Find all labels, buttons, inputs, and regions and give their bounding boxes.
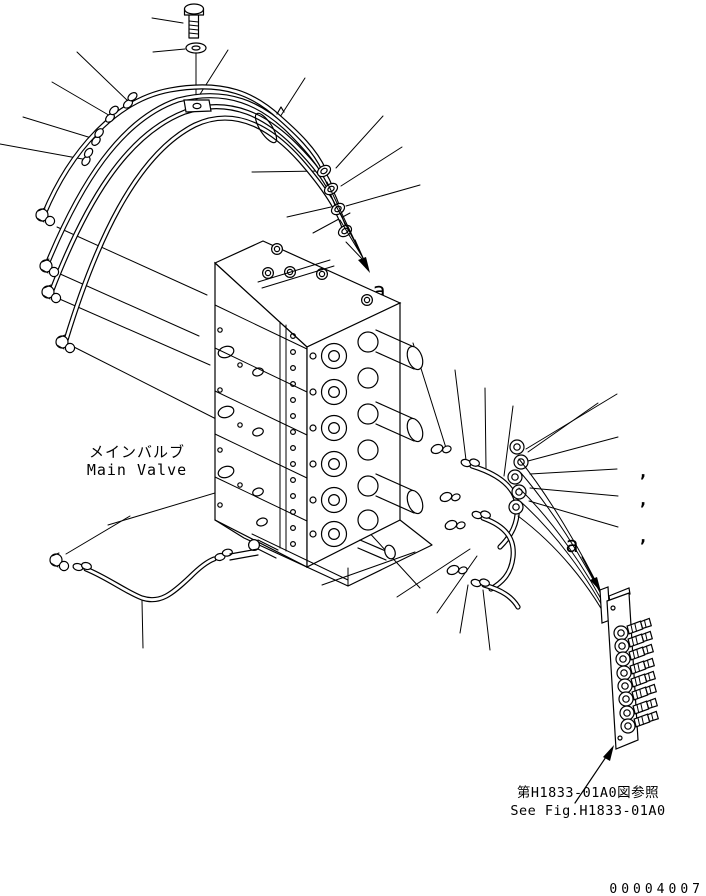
main-valve-label: メインバルブ Main Valve xyxy=(87,443,187,479)
reference-note-en: See Fig.H1833-01A0 xyxy=(510,803,665,819)
callout-comma-1: , xyxy=(638,462,648,482)
parts-diagram-canvas: a xyxy=(0,0,706,896)
lower-pilot-hose xyxy=(50,548,258,599)
callout-commas: , , , xyxy=(638,462,648,547)
main-valve-label-en: Main Valve xyxy=(87,461,187,479)
drawing-number: 00004007 xyxy=(609,882,704,896)
reference-note: 第H1833-01A0図参照 See Fig.H1833-01A0 xyxy=(510,784,665,819)
washer xyxy=(186,43,206,53)
section-label-a-right: a xyxy=(565,533,578,558)
reference-note-jp: 第H1833-01A0図参照 xyxy=(517,784,659,801)
callout-comma-2: , xyxy=(638,490,648,510)
main-control-valve-block xyxy=(215,241,432,586)
main-valve-label-jp: メインバルブ xyxy=(89,443,185,461)
multi-port-manifold-block xyxy=(600,587,659,749)
hose-clamp-plate xyxy=(184,100,211,112)
callout-comma-3: , xyxy=(638,527,648,547)
mounting-bolt xyxy=(185,4,204,38)
